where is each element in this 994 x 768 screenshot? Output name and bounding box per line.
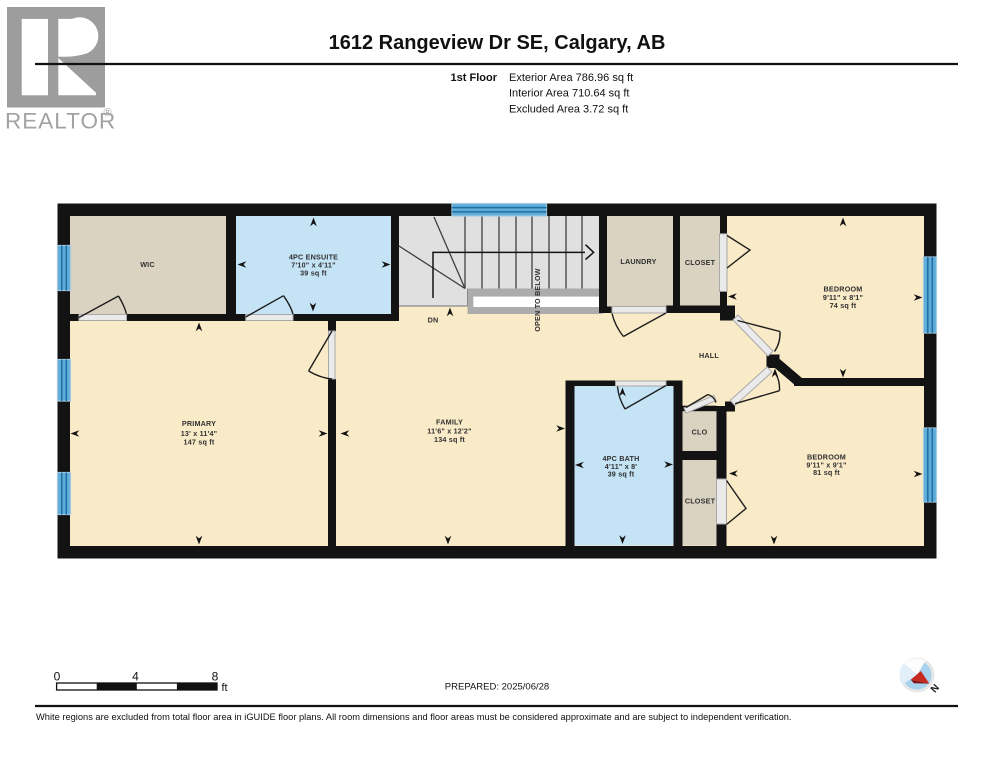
svg-text:74 sq ft: 74 sq ft — [830, 301, 857, 310]
svg-text:REALTOR: REALTOR — [5, 109, 116, 134]
svg-text:FAMILY: FAMILY — [436, 418, 463, 427]
svg-text:OPEN TO BELOW: OPEN TO BELOW — [533, 268, 542, 332]
svg-text:LAUNDRY: LAUNDRY — [620, 257, 656, 266]
svg-text:4: 4 — [132, 670, 139, 684]
svg-text:0: 0 — [54, 670, 61, 684]
svg-text:®: ® — [104, 107, 112, 119]
svg-text:White regions are excluded fro: White regions are excluded from total fl… — [36, 712, 792, 722]
svg-text:Excluded Area 3.72 sq ft: Excluded Area 3.72 sq ft — [509, 103, 628, 115]
svg-text:8: 8 — [212, 670, 219, 684]
svg-text:PREPARED: 2025/06/28: PREPARED: 2025/06/28 — [445, 682, 549, 693]
svg-text:CLO: CLO — [692, 428, 708, 437]
svg-text:1612 Rangeview Dr SE, Calgary,: 1612 Rangeview Dr SE, Calgary, AB — [329, 32, 666, 54]
svg-text:HALL: HALL — [699, 351, 719, 360]
svg-text:Exterior Area 786.96 sq ft: Exterior Area 786.96 sq ft — [509, 72, 633, 84]
svg-text:ft: ft — [222, 682, 228, 694]
svg-text:N: N — [929, 682, 942, 695]
svg-text:PRIMARY: PRIMARY — [182, 419, 216, 428]
svg-text:CLOSET: CLOSET — [685, 258, 716, 267]
svg-text:1st Floor: 1st Floor — [451, 72, 498, 84]
svg-text:CLOSET: CLOSET — [685, 497, 716, 506]
svg-text:81 sq ft: 81 sq ft — [813, 468, 840, 477]
svg-text:147 sq ft: 147 sq ft — [184, 438, 215, 447]
svg-text:WIC: WIC — [140, 260, 155, 269]
svg-text:39 sq ft: 39 sq ft — [300, 269, 327, 278]
svg-text:Interior Area 710.64 sq ft: Interior Area 710.64 sq ft — [509, 88, 629, 100]
svg-text:DN: DN — [428, 316, 439, 325]
svg-text:134 sq ft: 134 sq ft — [434, 435, 465, 444]
svg-text:39 sq ft: 39 sq ft — [608, 470, 635, 479]
